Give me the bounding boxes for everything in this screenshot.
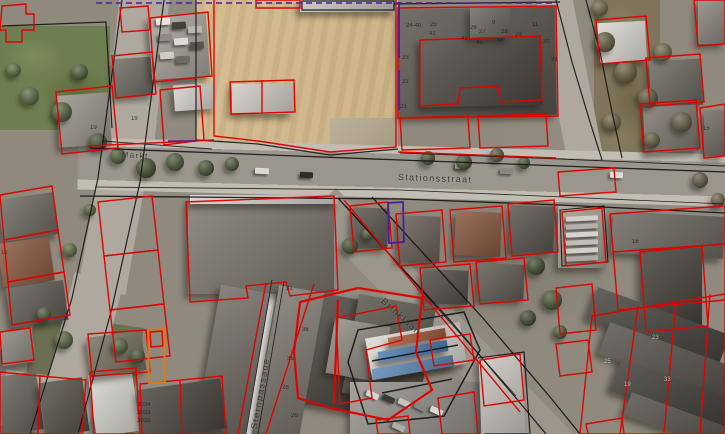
parcel-number: 25 <box>604 359 611 365</box>
parcel-boundary <box>150 12 212 82</box>
parcel-boundary <box>110 304 170 362</box>
parcel-number: 44 <box>497 38 504 44</box>
parcel-boundary <box>420 264 474 310</box>
parcel-boundary <box>256 0 300 8</box>
parcel-boundary <box>90 368 140 434</box>
parcel-number: 36 <box>302 327 309 333</box>
parcel-boundary <box>562 208 606 266</box>
parcel-number: 3034 <box>137 402 150 408</box>
parcel-number: 28 <box>501 29 508 35</box>
parcel-boundary <box>98 196 158 256</box>
parcel-boundary <box>610 206 725 310</box>
parcel-number: 33 <box>664 377 671 383</box>
parcel-boundary <box>646 54 704 106</box>
topo-line <box>2 22 112 128</box>
parcel-boundary <box>478 114 548 148</box>
parcel-number: 15 <box>703 126 710 132</box>
parcel-number: 24-40 <box>406 23 421 29</box>
parcel-boundary <box>400 116 470 150</box>
parcel-boundary <box>508 200 558 256</box>
parcel-number: 19 <box>624 382 631 388</box>
parcel-number: 9 <box>492 20 495 26</box>
parcel-boundary <box>150 331 163 347</box>
parcel-number: 42 <box>461 36 468 42</box>
parcel-number: 23 <box>402 55 409 61</box>
parcel-boundary <box>0 4 34 42</box>
cadastral-overlay <box>0 0 725 434</box>
parcel-number: 31 <box>551 57 558 63</box>
parcel-number: 28 <box>282 385 289 391</box>
parcel-number: 11 <box>532 22 538 28</box>
parcel-boundary <box>186 196 338 302</box>
parcel-boundary <box>640 100 700 152</box>
parcel-boundary <box>556 284 596 334</box>
parcel-number: 31 <box>286 286 293 292</box>
parcel-number: 19 <box>90 125 97 131</box>
topo-line <box>346 206 516 396</box>
parcel-number: 23 <box>652 335 659 341</box>
parcel-boundary <box>8 272 70 325</box>
topo-line <box>196 0 398 155</box>
parcel-boundary <box>160 86 204 145</box>
parcel-boundary <box>430 334 474 366</box>
topo-line <box>102 141 725 166</box>
parcel-number: 22 <box>402 79 409 85</box>
topo-line <box>560 206 608 266</box>
parcel-number: 21 <box>400 104 407 110</box>
parcel-boundary <box>336 306 402 404</box>
parcel-number: 35 <box>287 356 294 362</box>
parcel-boundary <box>450 206 506 262</box>
topo-line <box>556 0 622 160</box>
parcel-boundary <box>476 258 528 304</box>
parcel-number: 26 <box>291 413 298 419</box>
parcel-boundary <box>230 80 295 114</box>
parcel-number: 3032 <box>137 418 150 424</box>
parcel-boundary <box>140 376 226 434</box>
parcel-number: 43 <box>476 40 483 46</box>
street-label: Markt <box>121 150 149 161</box>
parcel-number: 25 <box>430 22 437 28</box>
parcel-boundary <box>580 294 725 434</box>
parcel-boundary <box>694 0 725 46</box>
parcel-number: 29 <box>515 32 522 38</box>
parcel-number: 12 <box>1 250 8 256</box>
parcel-boundary <box>376 392 478 434</box>
topo-line <box>90 148 725 172</box>
parcel-boundary <box>596 16 650 64</box>
parcel-boundary <box>214 0 396 152</box>
parcel-number: 27 <box>479 29 486 35</box>
parcel-boundary <box>0 328 34 364</box>
map-viewport[interactable]: StationsstraatBrinklaanSternpassageMarkt… <box>0 0 725 434</box>
parcel-number: 16 <box>632 239 639 245</box>
parcel-boundary <box>420 36 542 106</box>
parcel-boundary <box>350 202 392 252</box>
parcel-number: 19 <box>131 116 138 122</box>
parcel-boundary <box>112 52 156 98</box>
parcel-number: 30 <box>543 39 550 45</box>
parcel-boundary <box>398 152 556 158</box>
parcel-number: 41 <box>429 31 436 37</box>
parcel-boundary <box>120 6 150 32</box>
parcel-boundary <box>558 168 616 196</box>
parcel-number: 26 <box>470 25 477 31</box>
parcel-number: 3033 <box>137 410 150 416</box>
parcel-boundary <box>0 372 40 434</box>
